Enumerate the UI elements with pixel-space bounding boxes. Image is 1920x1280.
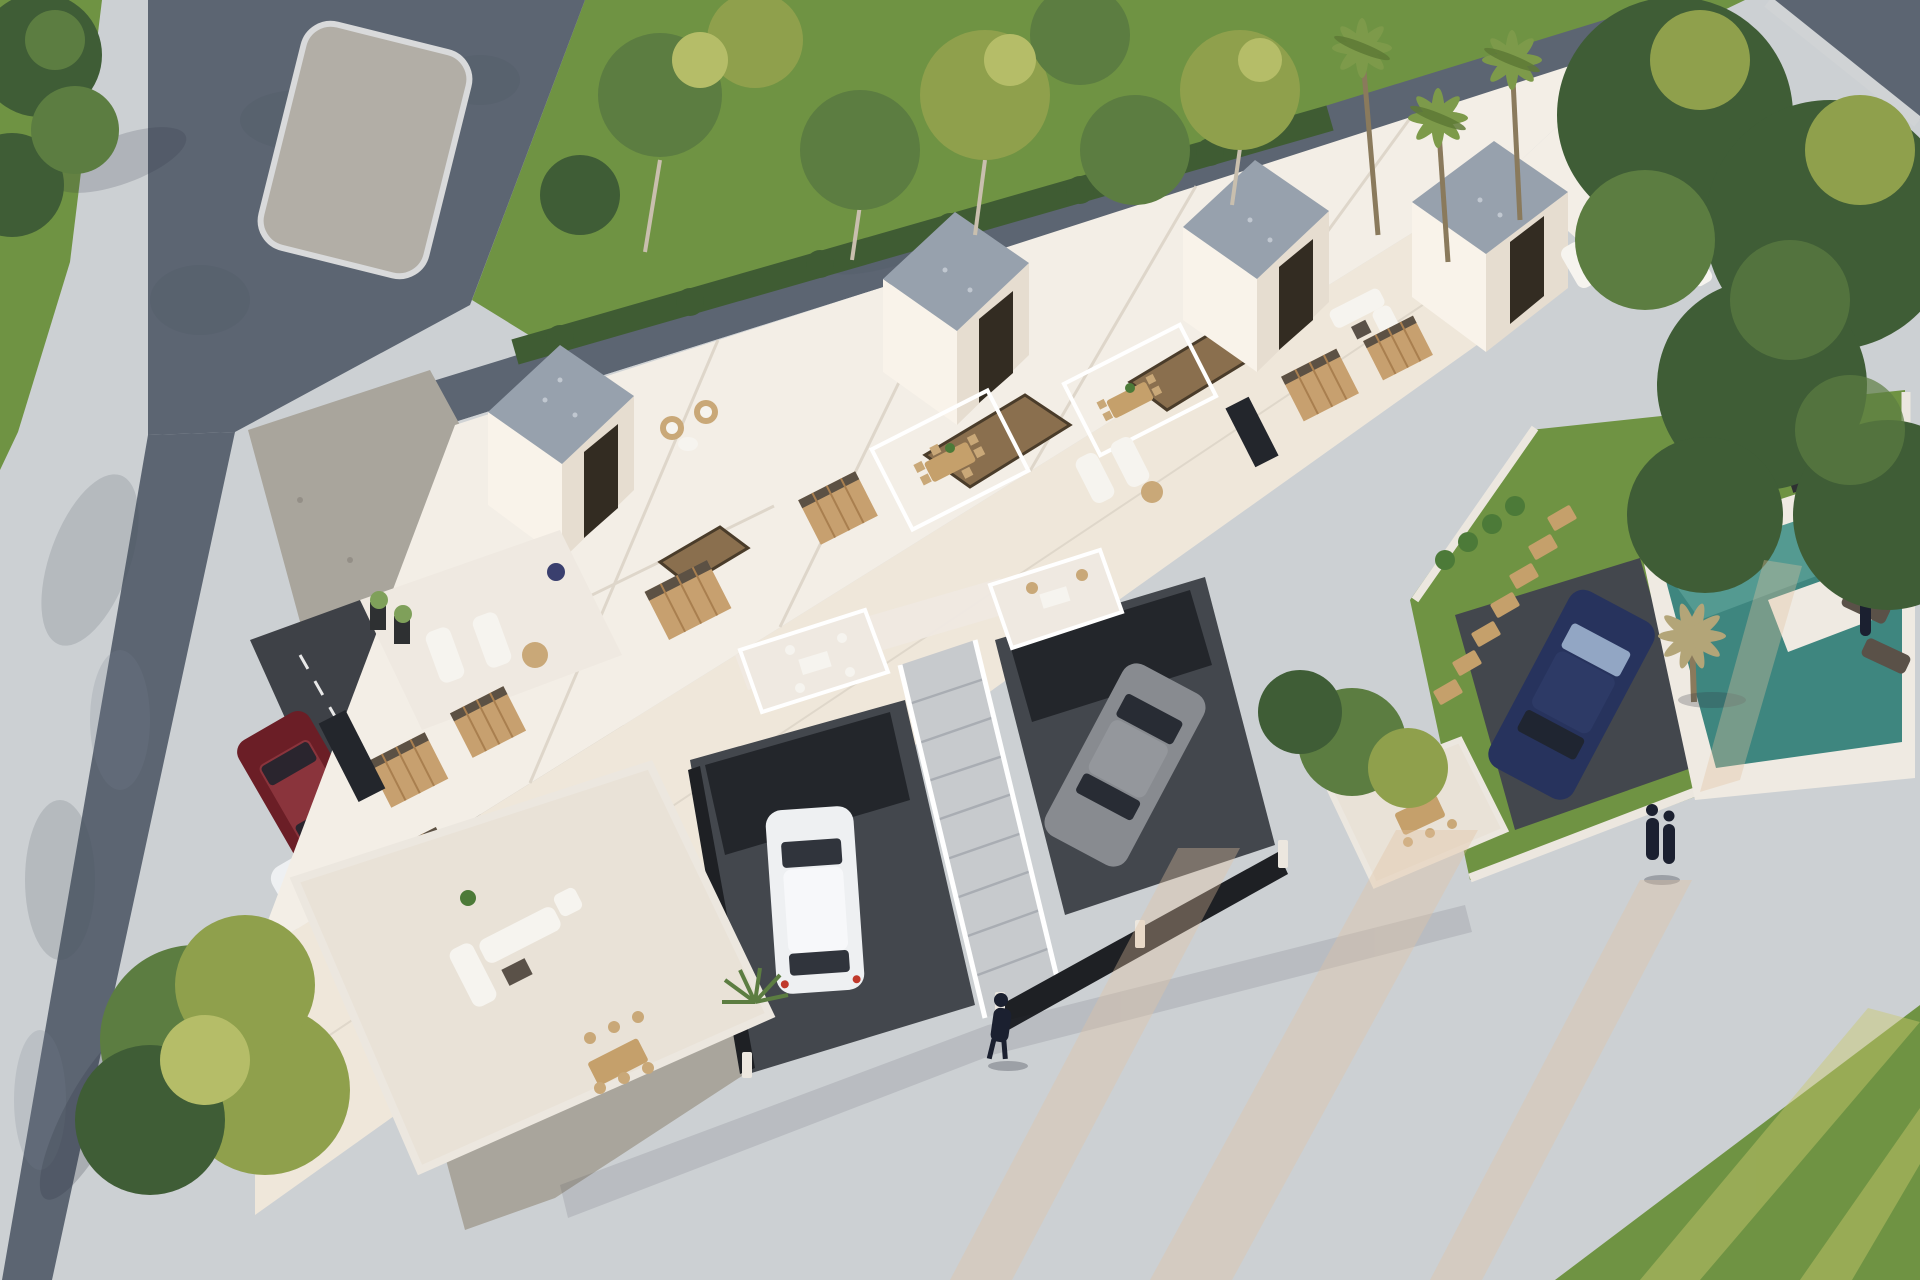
scene-canvas	[0, 0, 1920, 1280]
hatchback-windshield	[781, 838, 843, 868]
wicker-table	[522, 642, 548, 668]
blue-pot	[547, 563, 565, 581]
terrace-plant	[460, 890, 476, 906]
wicker-table	[1141, 481, 1163, 503]
render-stage	[0, 0, 1920, 1280]
person-head	[994, 993, 1008, 1007]
white-hatchback	[765, 805, 866, 995]
